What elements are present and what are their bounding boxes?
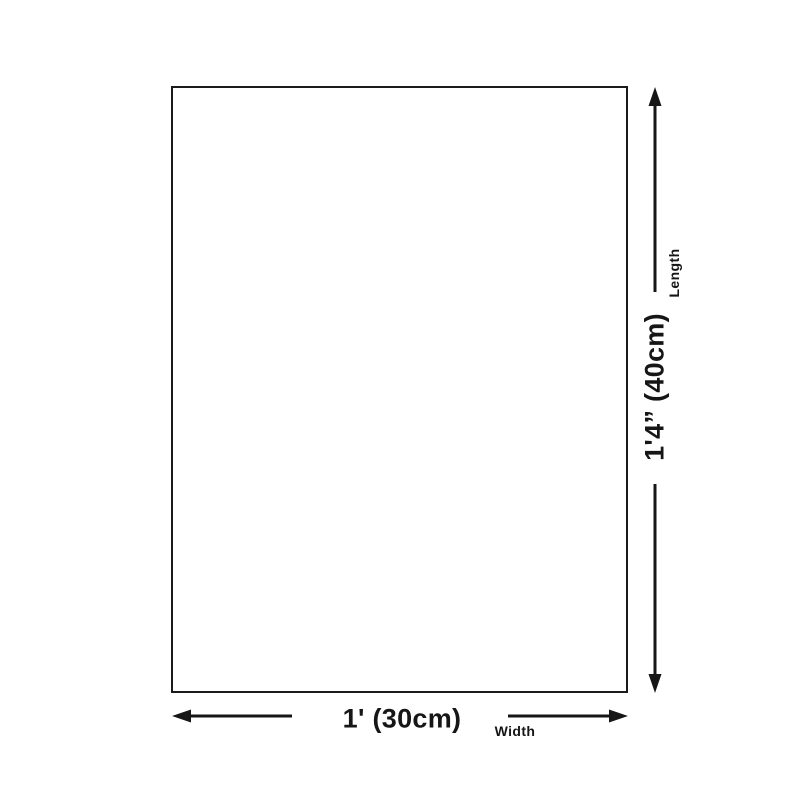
arrow-down-icon xyxy=(649,674,662,693)
arrow-right-icon xyxy=(609,710,628,723)
arrow-up-icon xyxy=(649,87,662,106)
length-value: 1'4” (40cm) xyxy=(642,313,669,461)
product-outline xyxy=(171,86,628,693)
arrow-left-icon xyxy=(172,710,191,723)
width-label: Width xyxy=(495,724,536,738)
width-value: 1' (30cm) xyxy=(343,706,462,733)
length-label: Length xyxy=(667,248,681,297)
dimension-diagram: 1'4” (40cm) Length 1' (30cm) Width xyxy=(0,0,800,800)
